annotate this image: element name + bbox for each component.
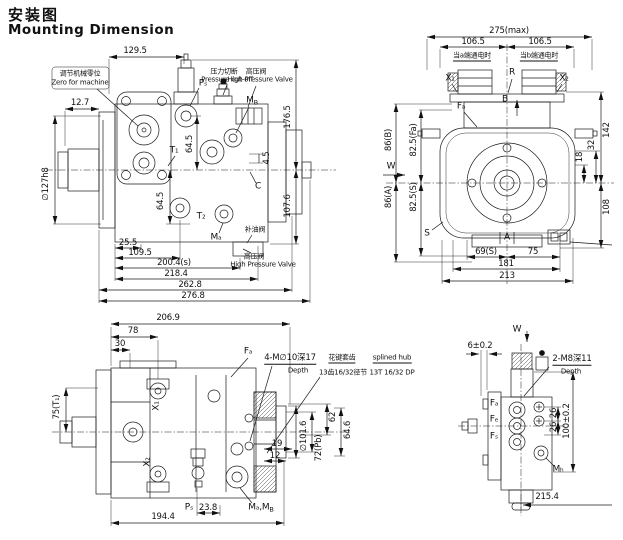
dim-30: 30 [115, 340, 125, 349]
dim-19: 19 [272, 440, 282, 449]
view-arrow-w: W [387, 163, 396, 172]
port-x2-top: X₂ [144, 457, 153, 466]
dim-129-5: 129.5 [123, 47, 146, 56]
dim-107-6: 107.6 [284, 194, 293, 217]
dim-6-0-2: 6±0.2 [467, 342, 492, 351]
dim-64-5-top: 64.5 [186, 135, 195, 153]
port-ps-top: Pₛ [185, 504, 193, 513]
dim-23-8: 23.8 [199, 504, 217, 513]
dim-218-4: 218.4 [164, 270, 187, 279]
mounting-dimension-drawing: 安装图 Mounting Dimension 129.5 12.7 ∅127h8… [0, 0, 623, 540]
note-m8-holes: 2-M8深11 [552, 355, 591, 366]
note-spline-zh-1: 花键套齿 [328, 355, 355, 364]
port-fa-top: Fₐ [244, 348, 252, 357]
dim-215-4: 215.4 [535, 493, 558, 502]
dim-75: 75 [528, 248, 538, 257]
note-hpv2-en: High Pressure Valve [230, 262, 296, 269]
dim-shaft-diameter: ∅127h8 [42, 167, 51, 200]
dim-69-s: 69(S) [475, 248, 497, 257]
port-s: S [424, 230, 430, 239]
dim-142: 142 [603, 122, 612, 138]
note-spline-zh-2: 13齿16/32径节 [319, 370, 367, 377]
dim-26-a: 26 [550, 408, 559, 418]
note-solenoid-b: 当b端通电时 [520, 53, 558, 62]
note-cutoff-zh: 压力切断 [210, 69, 237, 76]
dim-62: 62 [329, 412, 338, 422]
port-mh: Mₕ [552, 466, 563, 475]
port-ma: Mₐ [211, 234, 222, 243]
dim-25-5: 25.5 [119, 239, 137, 248]
dim-100-0-2: 100±0.2 [563, 403, 572, 438]
port-r: R [509, 69, 515, 78]
dim-75-t1: 75(T₁) [53, 395, 62, 420]
port-x1-top: X₁ [153, 401, 162, 410]
note-charge-zh: 补油阀 [245, 227, 265, 234]
note-zero-zh: 调节机械零位 [60, 71, 101, 78]
port-mb: MB [246, 97, 258, 106]
dim-206-9: 206.9 [156, 314, 179, 323]
dim-276-8: 276.8 [181, 292, 204, 301]
note-hpv2-zh: 高压阀 [244, 254, 264, 261]
note-mounting-holes: 4-M∅10深17 [264, 354, 316, 365]
port-t1: T₁ [170, 147, 179, 156]
page-title-en: Mounting Dimension [8, 22, 174, 38]
port-b: B [502, 96, 508, 105]
dim-64-6: 64.6 [344, 421, 353, 439]
note-zero-en: Zero for machine [51, 80, 108, 87]
port-c: C [255, 183, 261, 192]
note-mounting-holes-depth: Depth [288, 368, 308, 375]
dim-86-b: 86(B) [385, 129, 394, 151]
dim-194-4: 194.4 [151, 513, 174, 522]
dim-181: 181 [498, 260, 514, 269]
port-ps: Pₛ [199, 80, 207, 89]
dim-12: 12 [270, 452, 280, 461]
port-ma-mb: Mₐ,MB [248, 504, 273, 513]
dim-64-5-bottom: 64.5 [157, 192, 166, 210]
dim-262-8: 262.8 [178, 281, 201, 290]
dim-108: 108 [603, 199, 612, 215]
dim-176-5: 176.5 [284, 105, 293, 128]
note-spline-en-2: 13T 16/32 DP [369, 370, 414, 377]
dim-101-6: ∅101.6 [300, 421, 309, 452]
note-solenoid-a: 当a端通电时 [453, 53, 491, 62]
dim-78: 78 [128, 327, 138, 336]
dim-275-max: 275(max) [489, 27, 529, 36]
port-a: A [504, 234, 510, 243]
dim-26-b: 26 [550, 422, 559, 432]
note-hpv-zh: 高压阀 [246, 69, 266, 76]
dim-86-a: 86(A) [385, 186, 394, 208]
dim-82-5-s: 82.5(S) [410, 182, 419, 212]
port-fa-rear: Fₐ [457, 103, 465, 112]
dim-213: 213 [499, 272, 515, 281]
port-t2: T₂ [197, 213, 206, 222]
dim-32: 32 [588, 140, 597, 150]
port-fe-end: Fₑ [490, 416, 499, 425]
note-hpv-en: High Pressure Valve [227, 77, 293, 84]
port-fs-end: Fₛ [490, 433, 498, 442]
view-label-w: W [513, 326, 522, 335]
port-x2-rear: X₂ [559, 75, 568, 84]
port-fa-end: Fₐ [490, 400, 498, 409]
dim-106-5-a: 106.5 [461, 38, 484, 47]
dim-4-5: 4.5 [263, 152, 272, 165]
dim-106-5-b: 106.5 [528, 38, 551, 47]
port-x1-rear: X₁ [445, 75, 454, 84]
dim-200-4: 200.4(s) [157, 259, 191, 268]
note-spline-en-1: splined hub [373, 355, 412, 364]
dim-12-7: 12.7 [71, 99, 89, 108]
dim-82-5-fa: 82.5(Fa) [410, 123, 419, 156]
dim-72-pb: 72(Pb) [315, 435, 324, 462]
dim-18: 18 [576, 152, 585, 162]
note-m8-holes-depth: Depth [561, 369, 581, 376]
dim-109-5: 109.5 [128, 249, 151, 258]
